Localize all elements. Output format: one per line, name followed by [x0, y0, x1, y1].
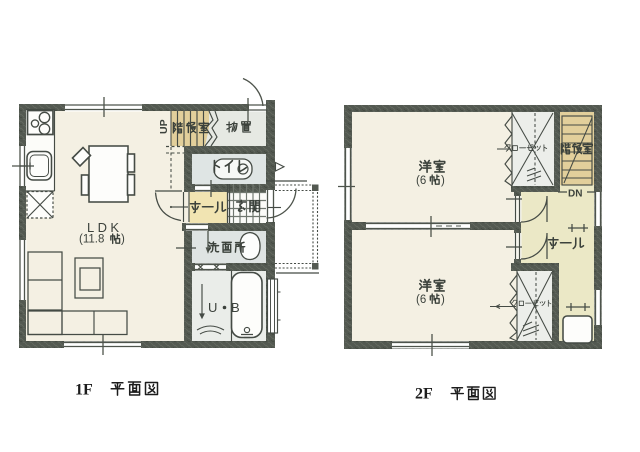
- svg-text:(6: (6: [416, 175, 426, 187]
- svg-text:): ): [121, 234, 125, 246]
- svg-text:(11.8: (11.8: [79, 234, 104, 246]
- svg-text:2F: 2F: [415, 386, 433, 403]
- svg-text:UP: UP: [158, 119, 170, 134]
- svg-text:1F: 1F: [75, 382, 93, 399]
- svg-text:DN: DN: [568, 189, 582, 200]
- svg-text:(6: (6: [416, 294, 426, 306]
- svg-text:): ): [441, 294, 445, 306]
- svg-text:): ): [441, 175, 445, 187]
- svg-text:U: U: [208, 300, 217, 315]
- svg-text:B: B: [231, 300, 240, 315]
